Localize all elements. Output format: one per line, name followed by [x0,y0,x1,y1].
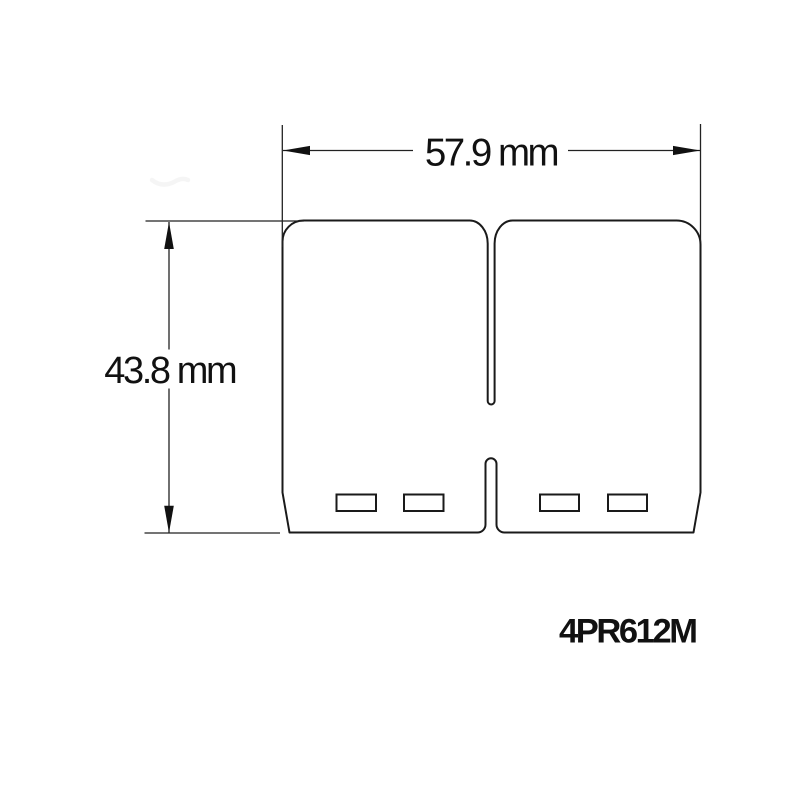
svg-text:4PR612M: 4PR612M [559,613,696,651]
svg-text:57.9 mm: 57.9 mm [425,132,558,175]
svg-text:43.8 mm: 43.8 mm [104,350,236,392]
